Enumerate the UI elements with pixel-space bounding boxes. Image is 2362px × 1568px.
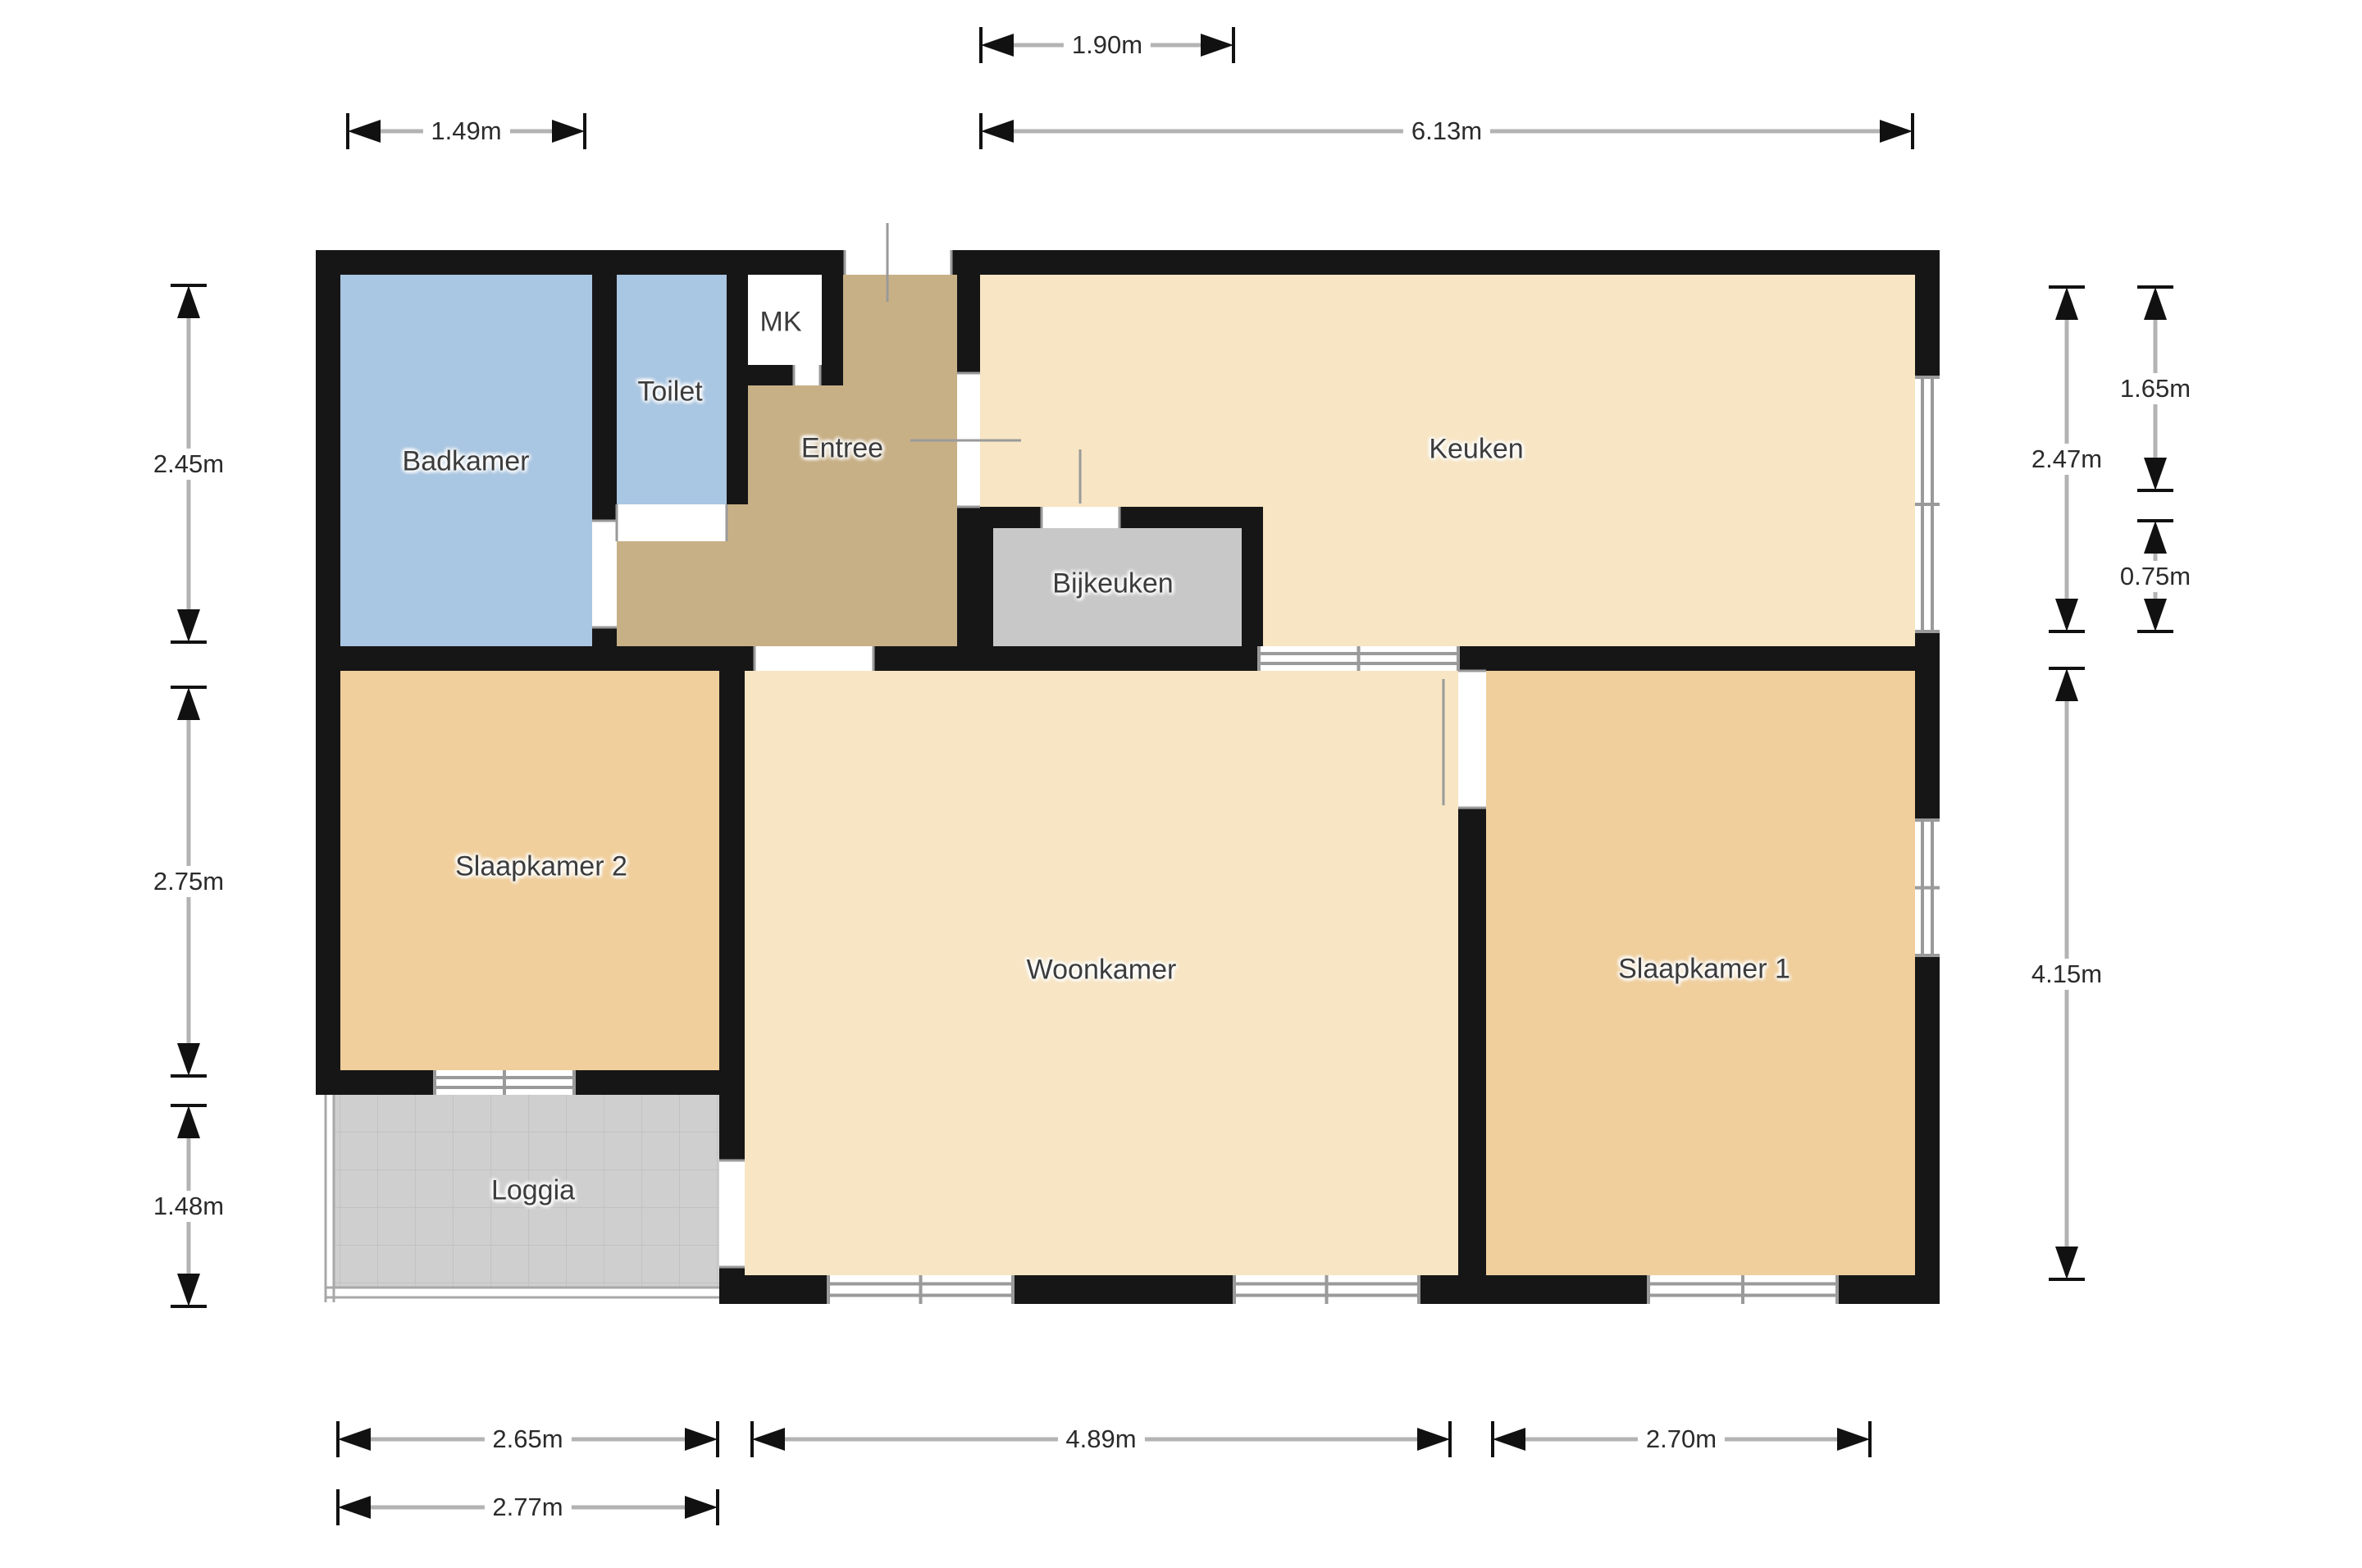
- room-slaapkamer-2: [340, 671, 719, 1070]
- room-bijkeuken: [993, 528, 1242, 646]
- dimension-right-outer-2: [2137, 521, 2173, 631]
- window: [1915, 377, 1940, 631]
- dimension-top-right: [981, 113, 1913, 149]
- dimension-right-inner-1: [2049, 287, 2085, 631]
- room-loggia: [335, 1095, 719, 1288]
- dimension-left-1: [171, 285, 207, 642]
- door-opening: [617, 504, 727, 541]
- door-opening: [1042, 507, 1119, 528]
- window: [435, 1070, 574, 1095]
- window: [1648, 1275, 1837, 1304]
- dimension-bottom-4: [338, 1489, 718, 1525]
- window: [1915, 820, 1940, 955]
- door-opening: [794, 365, 820, 385]
- room-slaapkamer-1: [1486, 671, 1915, 1275]
- dimension-bottom-1: [338, 1421, 718, 1457]
- room-badkamer: [340, 275, 592, 646]
- door-opening: [592, 521, 617, 627]
- room-floors-layer: [335, 275, 1915, 1288]
- window: [828, 1275, 1013, 1304]
- door-opening: [1458, 671, 1486, 808]
- dimension-top-small: [981, 27, 1233, 63]
- dimension-bottom-3: [1493, 1421, 1870, 1457]
- window: [1259, 646, 1458, 671]
- dimension-left-3: [171, 1105, 207, 1306]
- floor-plan-drawing: [0, 0, 2362, 1568]
- dimension-top-left: [348, 113, 585, 149]
- dimension-left-2: [171, 687, 207, 1076]
- room-toilet: [617, 275, 727, 504]
- door-opening: [755, 646, 873, 671]
- floor-plan-page: 1.90m1.49m6.13m2.45m2.75m1.48m2.47m4.15m…: [0, 0, 2362, 1568]
- door-opening: [719, 1160, 745, 1267]
- dimension-right-inner-2: [2049, 668, 2085, 1279]
- dimension-bottom-2: [752, 1421, 1450, 1457]
- dimension-right-outer-1: [2137, 287, 2173, 490]
- room-woonkamer: [745, 671, 1458, 1275]
- room-mk: [748, 275, 822, 365]
- window: [1234, 1275, 1419, 1304]
- door-opening: [845, 250, 951, 275]
